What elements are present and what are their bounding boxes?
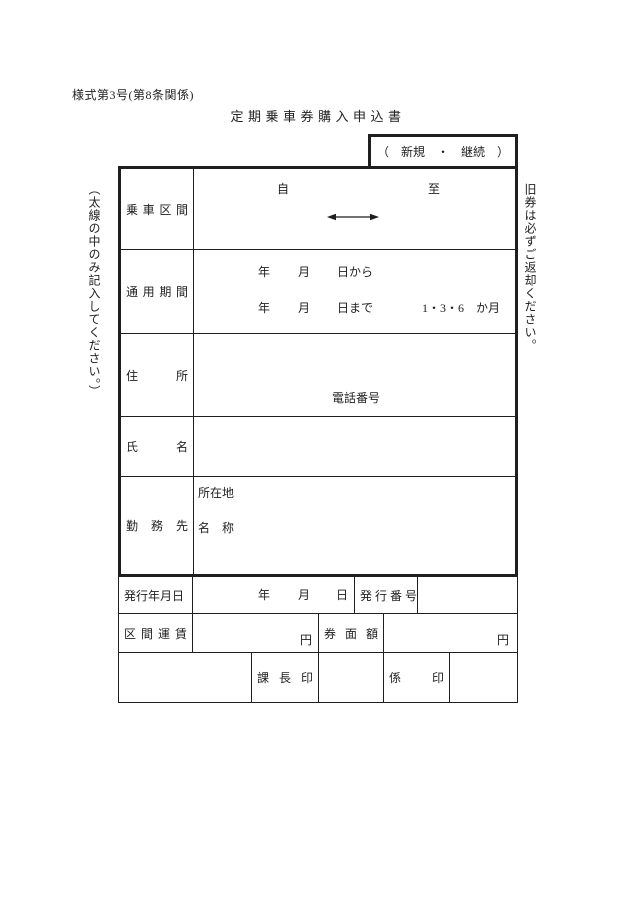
valid-period-label: 通 用 期 間 (121, 283, 193, 300)
office-use-section: 発行年月日 年 月 日 発 行 番 号 区 間 運 賃 円 券 面 額 (118, 577, 518, 703)
valid-period-field: 年 月 日から 年 月 日まで 1・3・6 か月 (194, 250, 515, 334)
issue-date-label: 発行年月日 (119, 587, 192, 604)
left-instruction-note: （太線の中のみ記入してください。） (86, 183, 103, 398)
period-end-day-label: 日まで (337, 301, 373, 315)
issue-date-label-cell: 発行年月日 (119, 577, 193, 613)
issue-month-label: 月 (298, 588, 310, 602)
manager-seal-label: 課 長 印 (252, 669, 318, 686)
section-fare-label-cell: 区 間 運 賃 (119, 614, 193, 652)
page-title: 定期乗車券購入申込書 (118, 106, 518, 125)
duration-options-label: 1・3・6 か月 (422, 301, 500, 315)
ticket-type-choice-label: （ 新規 ・ 継続 ） (377, 143, 509, 160)
form-number: 様式第3号(第8条関係) (72, 86, 194, 103)
section-fare-field: 円 (193, 614, 319, 652)
workplace-label: 勤 務 先 (121, 517, 193, 534)
workplace-field: 所在地 名 称 (194, 477, 515, 574)
double-arrow-icon (327, 211, 379, 226)
issue-year-label: 年 (258, 588, 270, 602)
issue-number-label: 発 行 番 号 (355, 587, 417, 604)
workplace-name-label: 名 称 (198, 521, 234, 535)
address-label-cell: 住 所 (121, 334, 194, 417)
phone-number-label: 電話番号 (332, 391, 380, 405)
ticket-type-choice-box: （ 新規 ・ 継続 ） (368, 134, 518, 166)
from-label: 自 (277, 182, 289, 196)
issue-date-row: 発行年月日 年 月 日 発 行 番 号 (119, 577, 517, 614)
section-fare-label: 区 間 運 賃 (119, 625, 192, 642)
period-end-year-label: 年 (258, 301, 270, 315)
to-label: 至 (428, 182, 440, 196)
workplace-label-cell: 勤 務 先 (121, 477, 194, 574)
manager-seal-label-cell: 課 長 印 (252, 653, 319, 702)
name-label-cell: 氏 名 (121, 417, 194, 477)
section-fare-yen-unit: 円 (300, 631, 312, 648)
staff-seal-label: 係 印 (384, 669, 449, 686)
staff-seal-label-cell: 係 印 (384, 653, 450, 702)
address-label: 住 所 (121, 367, 193, 384)
manager-seal-field (319, 653, 384, 702)
period-start-year-label: 年 (258, 265, 270, 279)
fare-row: 区 間 運 賃 円 券 面 額 円 (119, 614, 517, 653)
issue-number-label-cell: 発 行 番 号 (355, 577, 418, 613)
address-field: 電話番号 (194, 334, 515, 417)
face-value-field: 円 (384, 614, 517, 652)
application-form-sheet: 様式第3号(第8条関係) 定期乗車券購入申込書 （太線の中のみ記入してください。… (0, 0, 630, 915)
ride-section-field: 自 至 (194, 169, 515, 250)
period-end-month-label: 月 (298, 301, 310, 315)
seal-row-blank-cell (119, 653, 252, 702)
issue-day-label: 日 (336, 588, 348, 602)
ride-section-label-cell: 乗 車 区 間 (121, 169, 194, 250)
right-instruction-note: 旧券は必ずご返却ください。 (522, 183, 539, 352)
issue-number-field (418, 577, 517, 613)
issue-date-field: 年 月 日 (193, 577, 355, 613)
period-start-month-label: 月 (298, 265, 310, 279)
name-field (194, 417, 515, 477)
applicant-entry-section: 乗 車 区 間 自 至 通 用 期 間 年 月 日から 年 月 日まで 1・3 (118, 166, 518, 577)
ride-section-label: 乗 車 区 間 (121, 201, 193, 218)
face-value-label: 券 面 額 (319, 625, 383, 642)
seal-row: 課 長 印 係 印 (119, 653, 517, 702)
workplace-location-label: 所在地 (198, 486, 234, 500)
name-label: 氏 名 (121, 438, 193, 455)
valid-period-label-cell: 通 用 期 間 (121, 250, 194, 334)
face-value-yen-unit: 円 (497, 631, 509, 648)
period-start-day-label: 日から (337, 265, 373, 279)
face-value-label-cell: 券 面 額 (319, 614, 384, 652)
staff-seal-field (450, 653, 517, 702)
